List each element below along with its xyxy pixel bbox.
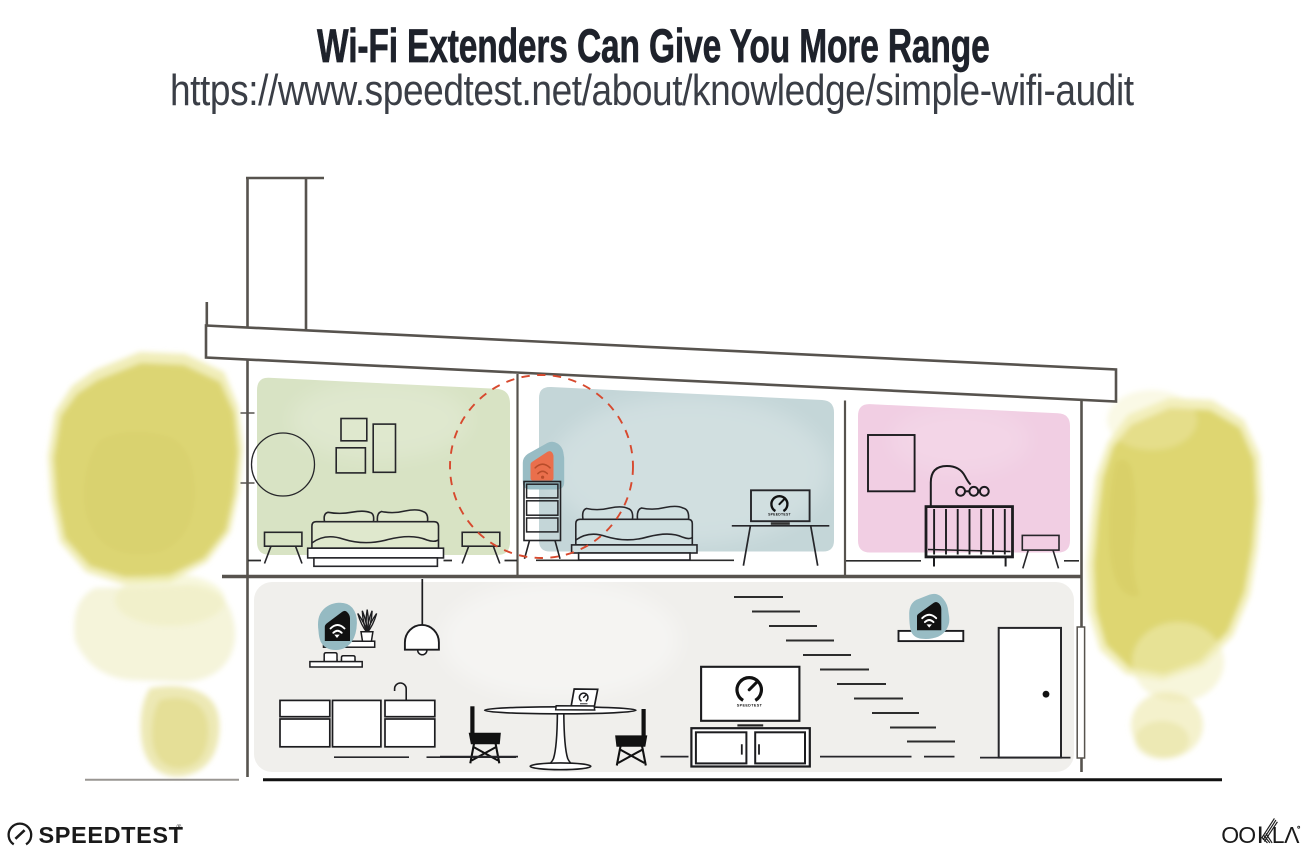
svg-text:SPEEDTEST: SPEEDTEST [737,704,763,708]
svg-text:LΛ: LΛ [1272,822,1300,848]
svg-text:OO: OO [1221,822,1255,848]
svg-text:SPEEDTEST: SPEEDTEST [768,513,791,517]
svg-text:SPEEDTEST: SPEEDTEST [39,822,184,848]
svg-text:®: ® [177,823,182,831]
